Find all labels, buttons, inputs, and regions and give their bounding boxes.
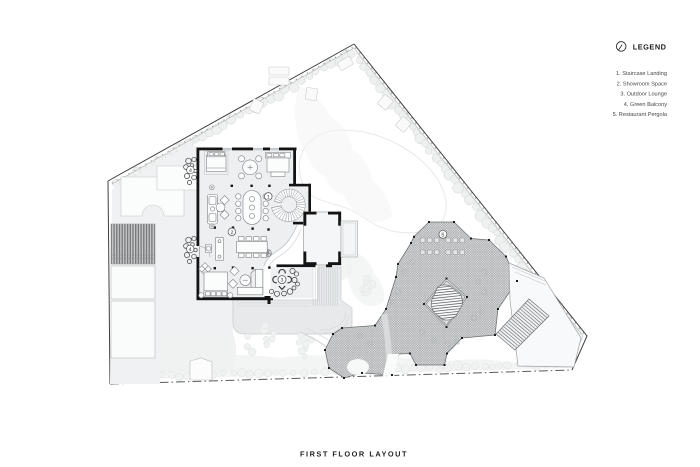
- svg-text:2. Showroom Space: 2. Showroom Space: [617, 80, 667, 87]
- svg-text:3. Outdoor Lounge: 3. Outdoor Lounge: [620, 91, 667, 98]
- svg-text:4: 4: [189, 168, 192, 174]
- svg-text:2: 2: [230, 230, 233, 236]
- svg-text:FIRST FLOOR LAYOUT: FIRST FLOOR LAYOUT: [300, 450, 408, 459]
- svg-text:4: 4: [189, 247, 192, 253]
- svg-text:1: 1: [267, 195, 270, 201]
- svg-text:5. Restaurant Pergola: 5. Restaurant Pergola: [613, 111, 668, 118]
- svg-text:LEGEND: LEGEND: [633, 42, 667, 51]
- svg-text:5: 5: [441, 232, 444, 238]
- svg-text:4. Green Balcony: 4. Green Balcony: [624, 101, 667, 108]
- svg-text:3: 3: [281, 278, 284, 284]
- svg-text:1. Staircase Landing: 1. Staircase Landing: [616, 70, 667, 77]
